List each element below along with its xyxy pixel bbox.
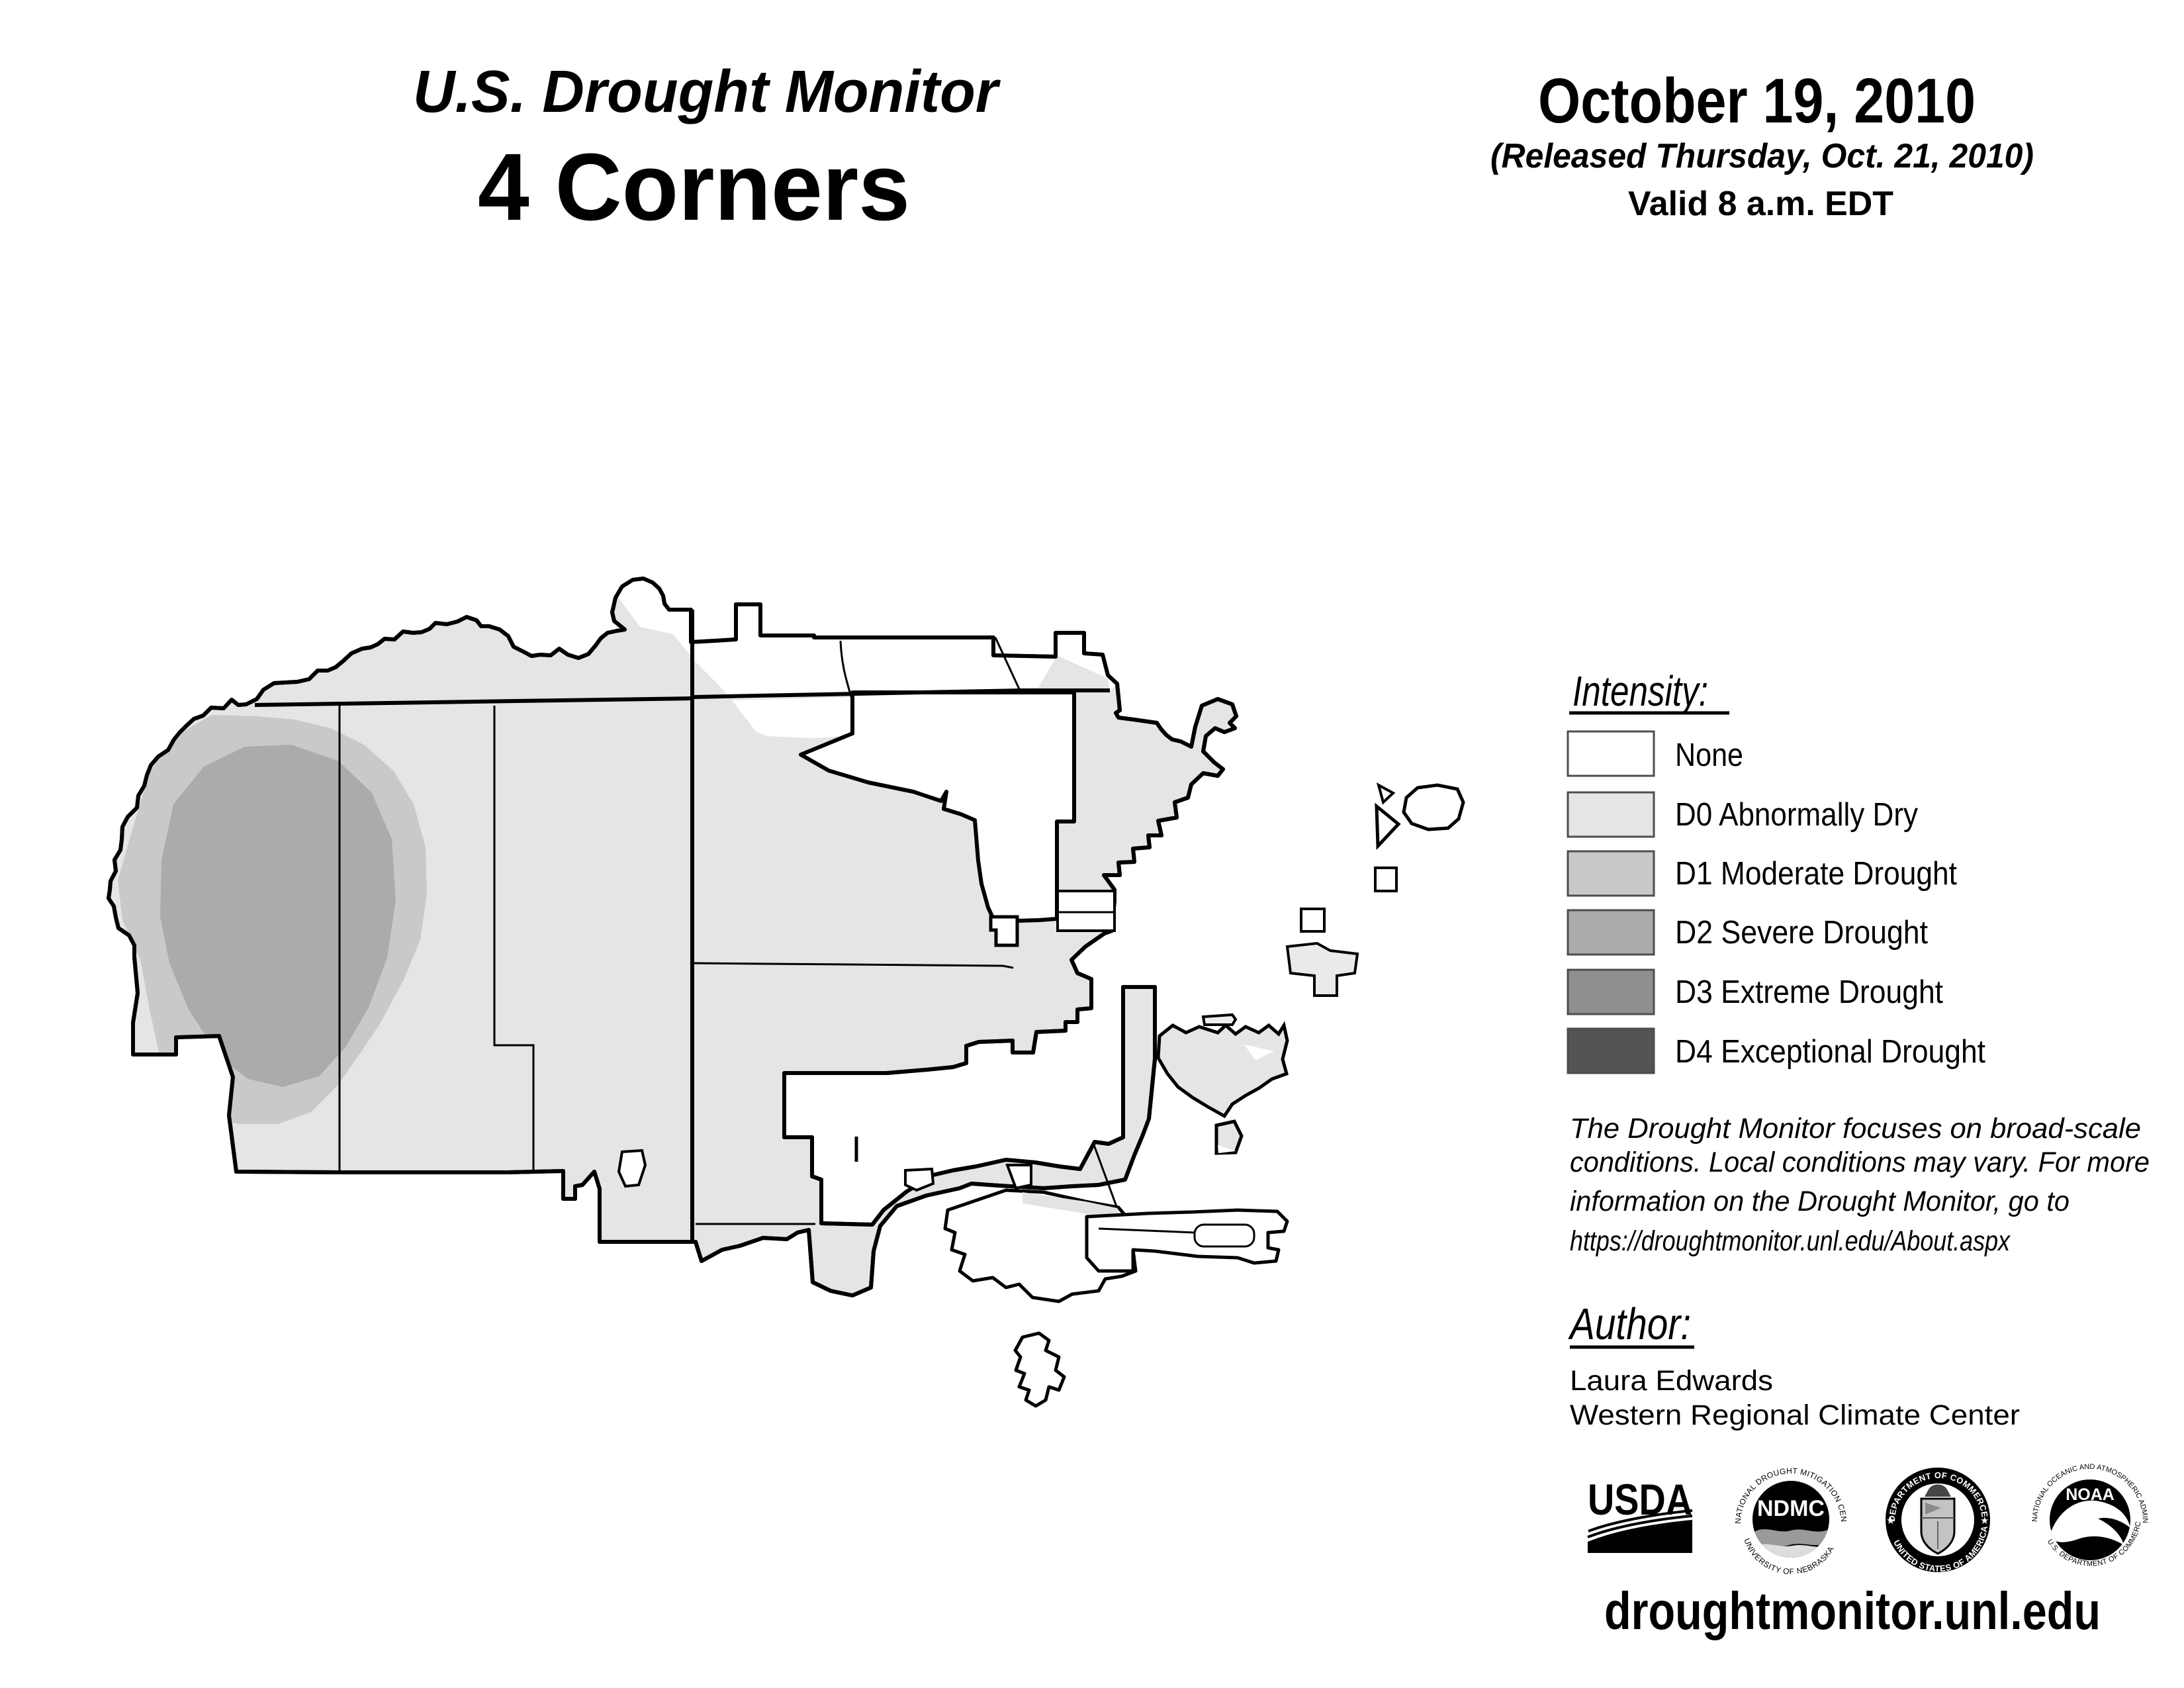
svg-text:★: ★ (1886, 1515, 1895, 1526)
svg-text:U.S. Drought Monitor: U.S. Drought Monitor (413, 59, 1001, 125)
svg-text:NOAA: NOAA (2066, 1485, 2115, 1504)
svg-text:4 Corners: 4 Corners (478, 134, 910, 240)
svg-text:None: None (1675, 737, 1743, 773)
svg-text:Valid 8 a.m. EDT: Valid 8 a.m. EDT (1628, 185, 1893, 223)
svg-text:D0 Abnormally Dry: D0 Abnormally Dry (1675, 797, 1918, 833)
svg-text:Laura Edwards: Laura Edwards (1570, 1365, 1773, 1397)
svg-text:October 19, 2010: October 19, 2010 (1538, 66, 1976, 136)
svg-text:D3 Extreme Drought: D3 Extreme Drought (1675, 974, 1943, 1010)
svg-text:D2 Severe Drought: D2 Severe Drought (1675, 915, 1928, 951)
svg-text:conditions. Local conditions m: conditions. Local conditions may vary. F… (1570, 1147, 2150, 1178)
svg-text:(Released Thursday, Oct. 21, 2: (Released Thursday, Oct. 21, 2010) (1490, 137, 2034, 175)
svg-text:information on the Drought Mon: information on the Drought Monitor, go t… (1570, 1186, 2070, 1217)
svg-text:D1 Moderate Drought: D1 Moderate Drought (1675, 856, 1957, 892)
svg-text:The Drought Monitor focuses on: The Drought Monitor focuses on broad-sca… (1570, 1113, 2141, 1145)
svg-text:Western Regional Climate Cente: Western Regional Climate Center (1570, 1399, 2020, 1431)
svg-text:NDMC: NDMC (1757, 1496, 1825, 1521)
svg-text:★: ★ (1980, 1515, 1989, 1526)
svg-text:D4 Exceptional Drought: D4 Exceptional Drought (1675, 1034, 1985, 1070)
svg-text:droughtmonitor.unl.edu: droughtmonitor.unl.edu (1604, 1581, 2101, 1640)
svg-text:https://droughtmonitor.unl.edu: https://droughtmonitor.unl.edu/About.asp… (1570, 1225, 2011, 1257)
svg-text:Author:: Author: (1568, 1299, 1691, 1349)
svg-text:Intensity:: Intensity: (1572, 667, 1708, 715)
